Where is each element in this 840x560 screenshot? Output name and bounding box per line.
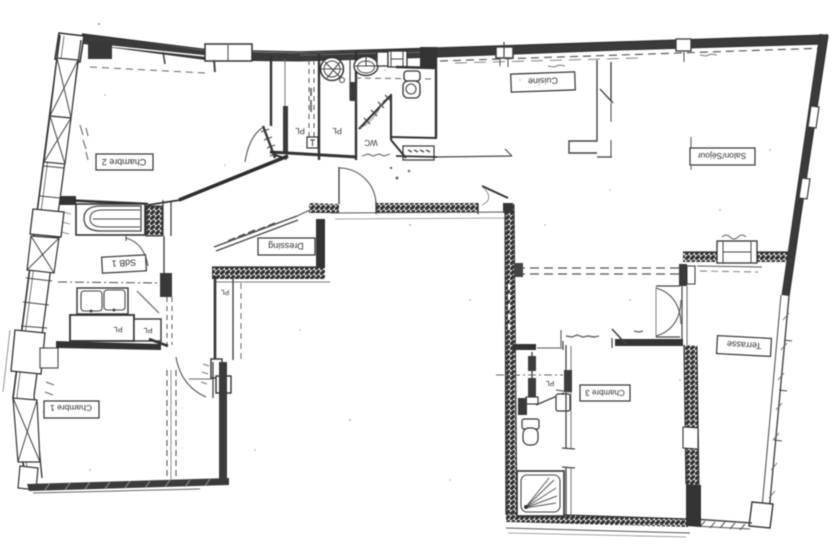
svg-text:SdB 1: SdB 1 <box>111 257 136 268</box>
svg-text:Dressing: Dressing <box>268 241 304 251</box>
svg-text:PL: PL <box>546 379 555 386</box>
svg-text:PL: PL <box>113 325 122 334</box>
svg-text:Cuisine: Cuisine <box>528 75 558 86</box>
svg-text:PL: PL <box>332 126 342 135</box>
svg-text:Chambre 2: Chambre 2 <box>102 157 147 167</box>
svg-text:Terrasse: Terrasse <box>727 339 762 351</box>
svg-text:Chambre 1: Chambre 1 <box>50 403 92 413</box>
svg-text:Chambre 3: Chambre 3 <box>585 388 625 397</box>
svg-text:PL: PL <box>143 326 152 335</box>
svg-text:Salon/Séjour: Salon/Séjour <box>697 151 746 161</box>
svg-text:PL: PL <box>221 288 230 295</box>
svg-text:WC: WC <box>364 138 378 147</box>
svg-text:PL: PL <box>295 126 305 135</box>
